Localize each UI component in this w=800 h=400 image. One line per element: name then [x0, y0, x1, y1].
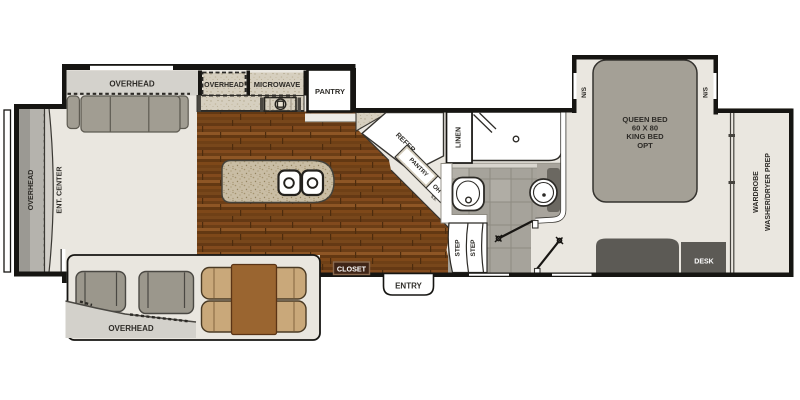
svg-text:DESK: DESK	[694, 259, 713, 266]
svg-text:MICROWAVE: MICROWAVE	[254, 80, 301, 89]
svg-text:ENTRY: ENTRY	[395, 282, 422, 291]
svg-text:STEP: STEP	[455, 239, 462, 257]
svg-text:OVERHEAD: OVERHEAD	[26, 170, 35, 211]
svg-text:OVERHEAD: OVERHEAD	[204, 82, 244, 89]
svg-text:LINEN: LINEN	[456, 127, 463, 148]
svg-text:OVERHEAD: OVERHEAD	[109, 80, 155, 89]
svg-text:N/S: N/S	[703, 86, 710, 98]
svg-text:ENT. CENTER: ENT. CENTER	[55, 166, 64, 214]
svg-text:OPT: OPT	[637, 141, 653, 150]
svg-text:N/S: N/S	[581, 86, 588, 98]
svg-text:WASHER/DRYER PREP: WASHER/DRYER PREP	[765, 153, 772, 231]
svg-text:CLOSET: CLOSET	[337, 265, 367, 274]
svg-text:OVERHEAD: OVERHEAD	[108, 324, 154, 333]
svg-text:STEP: STEP	[470, 239, 477, 257]
svg-text:PANTRY: PANTRY	[315, 87, 345, 96]
svg-text:WARDROBE: WARDROBE	[753, 171, 760, 213]
